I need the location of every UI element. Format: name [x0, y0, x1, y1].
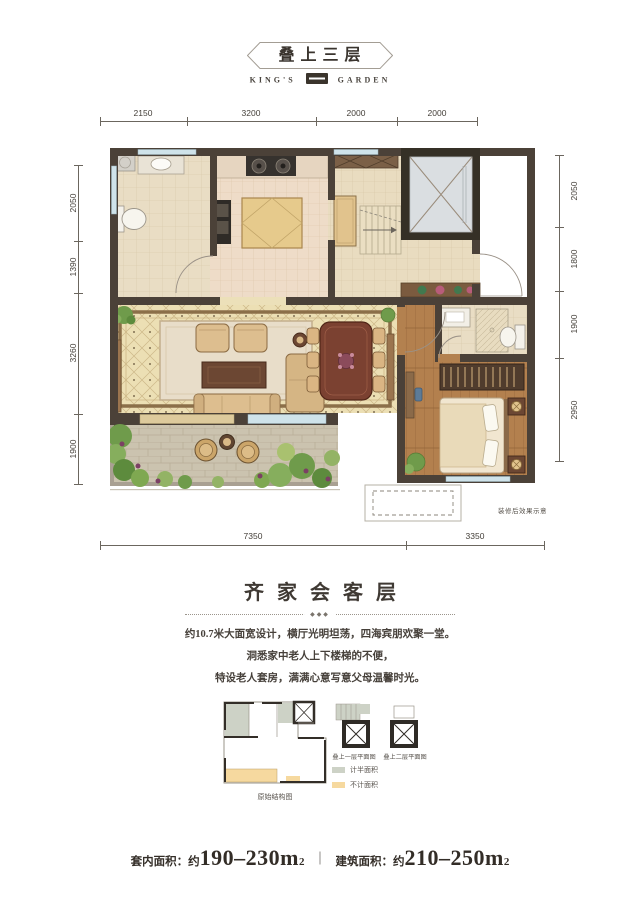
tick — [74, 414, 83, 415]
brand-left-text: KING'S — [250, 75, 296, 84]
dim-rule — [100, 121, 478, 122]
section-title: 齐家会客层 — [0, 576, 640, 605]
page-title: 叠上三层 — [247, 42, 393, 69]
inner-area-value: 190–230m — [200, 845, 299, 871]
dim-value: 2050 — [67, 189, 79, 217]
dim-rule — [100, 545, 545, 546]
legend-swatch-half-area — [332, 767, 345, 773]
floorplan-poster-page: { "header": { "title": "叠上三层", "brand_le… — [0, 0, 640, 920]
inner-area-sup: 2 — [299, 856, 305, 868]
tick — [555, 155, 564, 156]
dim-value: 2950 — [568, 396, 580, 424]
dim-value: 2050 — [568, 177, 580, 205]
tick — [74, 484, 83, 485]
legend-label: 计半面积 — [350, 765, 378, 775]
tick — [74, 293, 83, 294]
inner-area-prefix: 约 — [188, 853, 200, 869]
armchair — [234, 324, 267, 352]
dim-value: 2000 — [417, 108, 457, 118]
tick — [187, 117, 188, 126]
dim-line-right: 2050 1800 1900 2950 — [556, 155, 578, 462]
sideboard — [387, 334, 394, 400]
plan-note: 装修后效果示意 — [498, 505, 547, 515]
dim-value: 1390 — [67, 253, 79, 281]
legend-label: 不计面积 — [350, 780, 378, 790]
legend-row: 不计面积 — [332, 780, 378, 790]
footer-divider: ｜ — [313, 848, 326, 867]
tick — [555, 461, 564, 462]
gross-area-prefix: 约 — [393, 853, 405, 869]
section-divider: ◆◆◆ — [185, 614, 455, 615]
wardrobe — [440, 364, 524, 390]
gross-area-label: 建筑面积： — [336, 853, 394, 869]
dim-value: 3350 — [455, 531, 495, 541]
brand-right-text: GARDEN — [338, 75, 391, 84]
floor-plan-graphic — [110, 148, 535, 523]
title-box: 叠上三层 — [247, 42, 393, 69]
tick — [555, 358, 564, 359]
upper-floor2-label: 叠上二层平面图 — [374, 752, 436, 761]
dim-line-bottom: 7350 3350 — [100, 528, 545, 548]
dim-line-left: 2050 1390 3260 1900 — [62, 165, 84, 485]
area-legend: 计半面积 不计面积 — [332, 765, 378, 795]
tick — [555, 227, 564, 228]
tick — [406, 541, 407, 550]
upper-floor2-diagram — [386, 702, 422, 750]
legend-row: 计半面积 — [332, 765, 378, 775]
brand-line: KING'S GARDEN — [0, 73, 640, 88]
divider-ornament: ◆◆◆ — [304, 611, 336, 618]
description-line: 约10.7米大面宽设计，横厅光明坦荡，四海宾朋欢聚一堂。 — [0, 624, 640, 646]
description-line: 洞悉家中老人上下楼梯的不便， — [0, 646, 640, 668]
upper-floor1-diagram — [334, 702, 376, 750]
tick — [316, 117, 317, 126]
legend-swatch-excluded-area — [332, 782, 345, 788]
dim-value: 2150 — [123, 108, 163, 118]
brand-logo-icon — [306, 73, 328, 86]
structure-diagram-label: 原始结构图 — [222, 792, 328, 802]
dim-value: 3260 — [67, 339, 79, 367]
dim-value: 7350 — [233, 531, 273, 541]
gross-area-sup: 2 — [504, 856, 510, 868]
tick — [477, 117, 478, 126]
coffee-table — [202, 362, 266, 388]
dim-line-top: 2150 3200 2000 2000 — [100, 106, 478, 126]
tick — [397, 117, 398, 126]
entry-hall-fixtures — [401, 283, 480, 297]
balcony-outline — [365, 485, 461, 521]
dim-value: 1900 — [67, 435, 79, 463]
inner-area-label: 套内面积： — [131, 853, 189, 869]
gross-area-value: 210–250m — [405, 845, 504, 871]
dim-value: 1900 — [568, 310, 580, 338]
dim-value: 1800 — [568, 245, 580, 273]
elevator — [401, 148, 480, 240]
tick — [544, 541, 545, 550]
tick — [74, 241, 83, 242]
area-summary: 套内面积： 约 190–230m2 ｜ 建筑面积： 约 210–250m2 — [0, 845, 640, 871]
tick — [100, 541, 101, 550]
dim-rule — [559, 155, 560, 462]
tick — [74, 165, 83, 166]
dim-value: 2000 — [336, 108, 376, 118]
structure-diagram — [222, 700, 328, 786]
tick — [555, 291, 564, 292]
description-line: 特设老人套房，满满心意写意父母温馨时光。 — [0, 668, 640, 690]
description-block: 约10.7米大面宽设计，横厅光明坦荡，四海宾朋欢聚一堂。 洞悉家中老人上下楼梯的… — [0, 624, 640, 690]
dim-value: 3200 — [231, 108, 271, 118]
armchair — [196, 324, 229, 352]
tick — [100, 117, 101, 126]
